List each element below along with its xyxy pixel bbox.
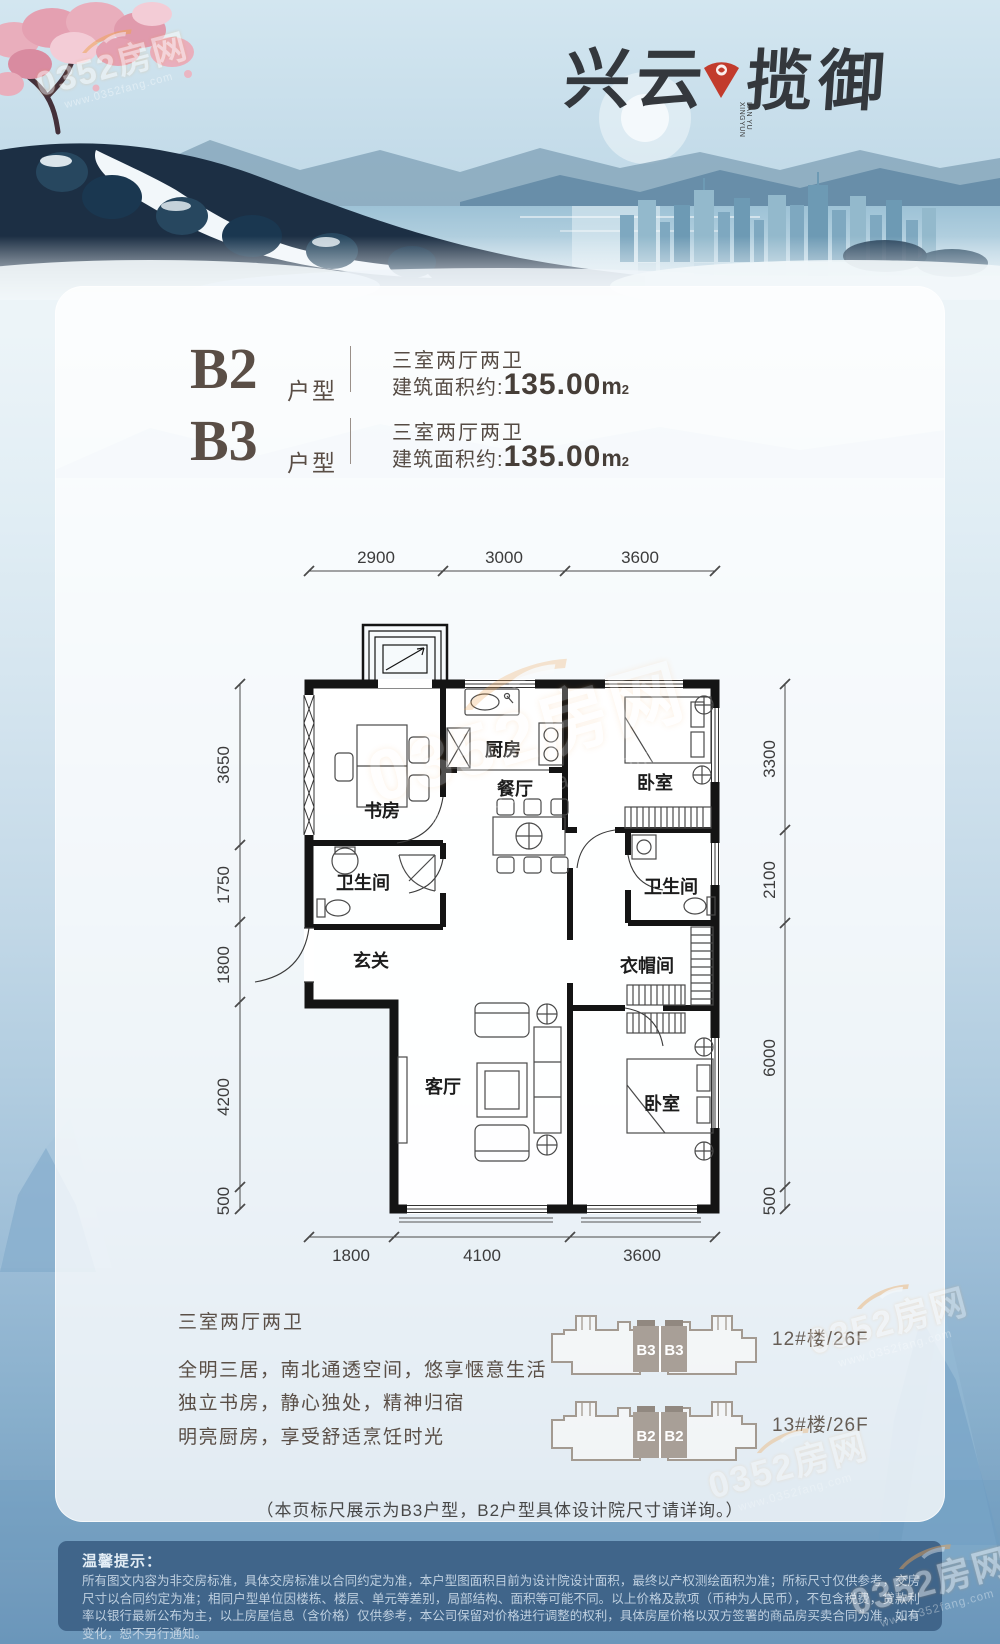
dim-right-3: 6000: [760, 1039, 779, 1077]
seal-text-1: LAN YU: [745, 102, 752, 130]
room-label-bath-left: 卫生间: [336, 872, 390, 893]
room-label-living: 客厅: [425, 1076, 461, 1097]
disclaimer-band: 温馨提示： 所有图文内容为非交房标准，具体交房标准以合同约定为准，本户型图面积目…: [58, 1541, 942, 1631]
area-unit: m: [601, 373, 621, 400]
logo-right-text: 揽御: [744, 45, 893, 119]
dim-top-2: 3000: [485, 548, 523, 567]
area-value: 135.00: [504, 368, 602, 402]
dim-left-3: 1800: [214, 946, 233, 984]
insulated-wall-hatch: [304, 695, 314, 835]
divider: [350, 418, 351, 464]
dim-left-4: 4200: [214, 1078, 233, 1116]
dim-left-5: 500: [214, 1187, 233, 1215]
area-value: 135.00: [504, 440, 602, 474]
entry-door-arc: [255, 928, 309, 982]
description-line: 全明三居，南北通透空间，悠享惬意生活: [178, 1354, 558, 1388]
dim-top-1: 2900: [357, 548, 395, 567]
unit-letter: B2: [664, 1428, 683, 1445]
building-13-label: 13#楼/26F: [772, 1410, 869, 1437]
unit-b2-suffix: 户型: [287, 372, 337, 406]
description-line: 独立书房，静心独处，精神归宿: [178, 1387, 558, 1421]
dim-right-1: 3300: [760, 740, 779, 778]
unit-b3-code: B3: [190, 412, 258, 470]
room-label-entry: 玄关: [353, 950, 389, 971]
unit-letter: B3: [664, 1342, 683, 1359]
dim-left-2: 1750: [214, 866, 233, 904]
dim-bottom-2: 4100: [463, 1246, 501, 1265]
header-banner: 兴云 揽御 LAN YU XINGYUN: [0, 0, 1000, 300]
area-exp: 2: [622, 454, 629, 469]
window-bottom-bedroom2: [581, 1204, 701, 1222]
dim-top-3: 3600: [621, 548, 659, 567]
room-label-study: 书房: [364, 800, 400, 821]
unit-b2-area: 建筑面积约:135.00m2: [392, 368, 629, 402]
window-right-bath2: [710, 843, 720, 885]
description-title: 三室两厅两卫: [178, 1306, 558, 1340]
seal-text-2: XINGYUN: [738, 102, 745, 137]
room-label-dining: 餐厅: [496, 778, 533, 799]
unit-letter: B3: [636, 1342, 655, 1359]
dim-right-4: 500: [760, 1187, 779, 1215]
disclaimer-body: 所有图文内容为非交房标准，具体交房标准以合同约定为准，本户型图面积目前为设计院设…: [82, 1573, 920, 1643]
area-exp: 2: [622, 382, 629, 397]
unit-b3-suffix: 户型: [287, 444, 337, 478]
floor-plan: 2900 3000 3600 3650 1750 1800 4200 500 3…: [185, 525, 810, 1270]
room-label-kitchen: 厨房: [485, 739, 521, 760]
disclaimer-title: 温馨提示：: [82, 1550, 162, 1571]
description-block: 三室两厅两卫 全明三居，南北通透空间，悠享惬意生活 独立书房，静心独处，精神归宿…: [178, 1306, 558, 1454]
divider: [350, 346, 351, 392]
entry-door-gap: [304, 928, 314, 982]
window-top-bedroom: [605, 679, 683, 689]
unit-b3-area: 建筑面积约:135.00m2: [392, 440, 629, 474]
window-top-kitchen: [465, 679, 535, 689]
room-label-closet: 衣帽间: [620, 955, 674, 976]
building-key-13: B2 B2: [548, 1390, 760, 1468]
window-bottom-living: [399, 1204, 553, 1222]
note-line: （本页标尺展示为B3户型，B2户型具体设计院尺寸请详询。）: [55, 1496, 945, 1521]
dim-right-2: 2100: [760, 861, 779, 899]
description-line: 明亮厨房，享受舒适烹饪时光: [178, 1421, 558, 1455]
area-label: 建筑面积约:: [392, 443, 504, 472]
room-label-bedroom-top: 卧室: [637, 772, 673, 793]
building-key-12: B3 B3: [548, 1304, 760, 1382]
unit-b2-code: B2: [190, 340, 258, 398]
dim-bottom-1: 1800: [332, 1246, 370, 1265]
dim-left-1: 3650: [214, 746, 233, 784]
logo-left-text: 兴云: [562, 43, 711, 117]
area-unit: m: [601, 445, 621, 472]
room-label-bath-right: 卫生间: [644, 876, 698, 897]
dim-bottom-3: 3600: [623, 1246, 661, 1265]
unit-letter: B2: [636, 1428, 655, 1445]
stair-shaft: [363, 625, 447, 688]
room-label-bedroom-bottom: 卧室: [644, 1093, 680, 1114]
area-label: 建筑面积约:: [392, 371, 504, 400]
building-12-label: 12#楼/26F: [772, 1324, 869, 1351]
